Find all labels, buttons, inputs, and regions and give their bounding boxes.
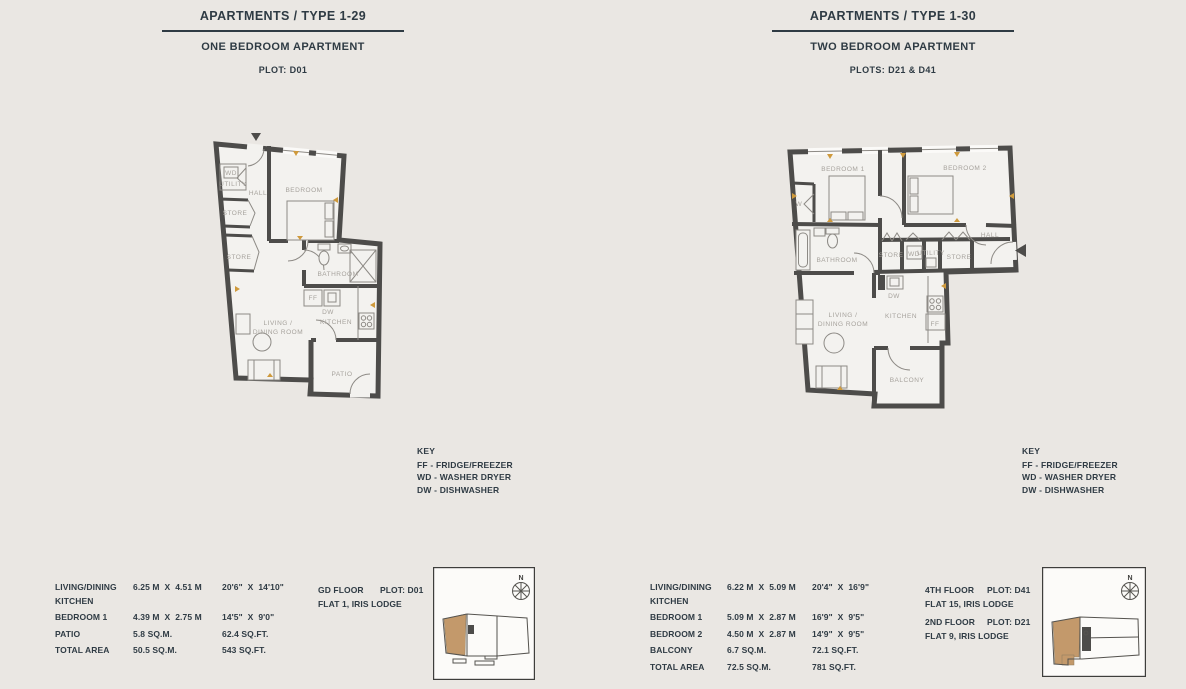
- key-item-wd: WD - WASHER DRYER: [417, 471, 513, 484]
- room-label-store-left: STORE: [879, 252, 904, 259]
- room-label-kitchen: KITCHEN: [320, 319, 352, 326]
- row-metric: 50.5 SQ.M.: [133, 644, 222, 658]
- key-item-ff: FF - FRIDGE/FREEZER: [417, 459, 513, 472]
- left-spec-table: LIVING/DININGKITCHEN6.25 M X 4.51 M20'6"…: [55, 581, 332, 661]
- bed: [287, 201, 334, 240]
- row-name: BALCONY: [650, 644, 727, 658]
- side-unit: [236, 314, 250, 334]
- room-label-store-lower: STORE: [227, 254, 252, 261]
- room-label-ff: FF: [931, 321, 940, 328]
- key-item-dw: DW - DISHWASHER: [1022, 484, 1118, 497]
- left-unit-header: APARTMENTS / TYPE 1-29 ONE BEDROOM APART…: [162, 9, 404, 75]
- basin: [338, 244, 351, 253]
- room-label-wardrobe: W: [796, 201, 803, 208]
- row-name: PATIO: [55, 628, 133, 642]
- room-label-balcony: BALCONY: [890, 377, 925, 384]
- room-label-bedroom: BEDROOM: [285, 187, 322, 194]
- highlighted-unit: [444, 614, 466, 655]
- left-title: APARTMENTS / TYPE 1-29: [162, 9, 404, 23]
- row-metric: 5.8 SQ.M.: [133, 628, 222, 642]
- entry-opening: [247, 147, 263, 149]
- left-subtitle: ONE BEDROOM APARTMENT: [162, 41, 404, 53]
- room-label-store-right: STORE: [947, 254, 972, 261]
- room-label-kitchen: KITCHEN: [885, 313, 917, 320]
- row-imperial: 20'6" X 14'10": [222, 581, 332, 595]
- table-row: BEDROOM 14.39 M X 2.75 M14'5" X 9'0": [55, 611, 332, 625]
- left-plot: PLOT: D01: [162, 65, 404, 75]
- right-plot: PLOTS: D21 & D41: [772, 65, 1014, 75]
- bed-2: [908, 176, 953, 214]
- row-name: TOTAL AREA: [650, 661, 727, 675]
- row-name: LIVING/DINING: [650, 582, 712, 592]
- row-name: BEDROOM 1: [55, 611, 133, 625]
- entry-arrow-icon: [251, 133, 261, 141]
- dining-table: [824, 333, 844, 353]
- row-imperial: 14'5" X 9'0": [222, 611, 332, 625]
- right-floor-info: 4TH FLOORPLOT: D41 FLAT 15, IRIS LODGE 2…: [925, 583, 1030, 647]
- floor-label: 4TH FLOOR: [925, 583, 987, 597]
- row-metric: 6.25 M X 4.51 M: [133, 581, 222, 595]
- room-label-dw: DW: [888, 293, 900, 300]
- room-label-hall: HALL: [249, 190, 267, 197]
- row-metric: 4.50 M X 2.87 M: [727, 628, 812, 642]
- table-row: PATIO5.8 SQ.M.62.4 SQ.FT.: [55, 628, 332, 642]
- right-unit-header: APARTMENTS / TYPE 1-30 TWO BEDROOM APART…: [772, 9, 1014, 75]
- room-label-utility: UTILITY: [219, 181, 247, 188]
- row-imperial: 781 SQ.FT.: [812, 661, 925, 675]
- left-sitemap: N: [433, 567, 535, 680]
- table-row: TOTAL AREA50.5 SQ.M.543 SQ.FT.: [55, 644, 332, 658]
- room-label-living-1: LIVING /: [829, 312, 858, 319]
- bathtub: [796, 230, 810, 270]
- key-item-wd: WD - WASHER DRYER: [1022, 471, 1118, 484]
- location-block: 2ND FLOORPLOT: D21 FLAT 9, IRIS LODGE: [925, 615, 1030, 643]
- plot-label: PLOT: D41: [987, 585, 1030, 595]
- key-heading: KEY: [417, 445, 513, 458]
- left-key: KEY FF - FRIDGE/FREEZER WD - WASHER DRYE…: [417, 445, 513, 496]
- row-imperial: 62.4 SQ.FT.: [222, 628, 332, 642]
- right-sitemap: N: [1042, 567, 1146, 677]
- floor-label: GD FLOOR: [318, 583, 380, 597]
- entry-opening: [1013, 242, 1014, 260]
- room-label-wd: WD: [225, 170, 237, 177]
- table-row: BEDROOM 24.50 M X 2.87 M14'9" X 9'5": [650, 628, 925, 642]
- row-name-2: KITCHEN: [650, 596, 688, 606]
- room-label-bedroom2: BEDROOM 2: [943, 165, 987, 172]
- room-label-bathroom: BATHROOM: [317, 271, 358, 278]
- room-label-living-2: DINING ROOM: [818, 321, 868, 328]
- room-label-living-1: LIVING /: [264, 320, 293, 327]
- floor-label: 2ND FLOOR: [925, 615, 987, 629]
- armchair: [816, 366, 847, 388]
- room-label-dw: DW: [322, 309, 334, 316]
- row-imperial: 72.1 SQ.FT.: [812, 644, 925, 658]
- row-imperial: 14'9" X 9'5": [812, 628, 925, 642]
- flat-label: FLAT 9, IRIS LODGE: [925, 631, 1009, 641]
- room-label-ff: FF: [309, 295, 318, 302]
- row-imperial: 16'9" X 9'5": [812, 611, 925, 625]
- svg-text:N: N: [1127, 575, 1132, 582]
- row-metric: 4.39 M X 2.75 M: [133, 611, 222, 625]
- floorplan-one-bedroom: WD UTILITY HALL STORE STORE BEDROOM BATH…: [192, 128, 392, 418]
- right-subtitle: TWO BEDROOM APARTMENT: [772, 41, 1014, 53]
- row-imperial: 543 SQ.FT.: [222, 644, 332, 658]
- left-title-rule: [162, 30, 404, 32]
- utility-sink: [926, 258, 936, 267]
- floorplan-two-bedroom: BEDROOM 1 BEDROOM 2 W HALL BATHROOM STOR…: [770, 138, 1030, 426]
- right-title: APARTMENTS / TYPE 1-30: [772, 9, 1014, 23]
- room-label-utility: UTILITY: [917, 250, 945, 257]
- key-item-ff: FF - FRIDGE/FREEZER: [1022, 459, 1118, 472]
- row-name: TOTAL AREA: [55, 644, 133, 658]
- plot-label: PLOT: D21: [987, 617, 1030, 627]
- room-label-bathroom: BATHROOM: [816, 257, 857, 264]
- svg-text:N: N: [518, 575, 523, 582]
- row-metric: 6.22 M X 5.09 M: [727, 581, 812, 595]
- right-title-rule: [772, 30, 1014, 32]
- room-label-hall: HALL: [981, 232, 999, 239]
- sofa: [248, 360, 280, 380]
- table-row: LIVING/DININGKITCHEN6.22 M X 5.09 M20'4"…: [650, 581, 925, 608]
- left-floor-info: GD FLOORPLOT: D01 FLAT 1, IRIS LODGE: [318, 583, 423, 615]
- row-metric: 5.09 M X 2.87 M: [727, 611, 812, 625]
- room-label-patio: PATIO: [331, 371, 352, 378]
- key-item-dw: DW - DISHWASHER: [417, 484, 513, 497]
- row-name: BEDROOM 1: [650, 611, 727, 625]
- row-metric: 6.7 SQ.M.: [727, 644, 812, 658]
- flat-label: FLAT 15, IRIS LODGE: [925, 599, 1014, 609]
- right-key: KEY FF - FRIDGE/FREEZER WD - WASHER DRYE…: [1022, 445, 1118, 496]
- row-name: BEDROOM 2: [650, 628, 727, 642]
- table-row: LIVING/DININGKITCHEN6.25 M X 4.51 M20'6"…: [55, 581, 332, 608]
- toilet: [318, 244, 330, 265]
- room-label-bedroom1: BEDROOM 1: [821, 166, 865, 173]
- right-spec-table: LIVING/DININGKITCHEN6.22 M X 5.09 M20'4"…: [650, 581, 925, 677]
- room-label-living-2: DINING ROOM: [253, 329, 303, 336]
- plot-label: PLOT: D01: [380, 585, 423, 595]
- room-label-store-upper: STORE: [223, 210, 248, 217]
- flat-label: FLAT 1, IRIS LODGE: [318, 599, 402, 609]
- toilet: [826, 228, 839, 248]
- location-block: 4TH FLOORPLOT: D41 FLAT 15, IRIS LODGE: [925, 583, 1030, 611]
- row-imperial: 20'4" X 16'9": [812, 581, 925, 595]
- table-row: BALCONY6.7 SQ.M.72.1 SQ.FT.: [650, 644, 925, 658]
- bed-1: [829, 176, 865, 220]
- key-heading: KEY: [1022, 445, 1118, 458]
- table-row: BEDROOM 15.09 M X 2.87 M16'9" X 9'5": [650, 611, 925, 625]
- sofa: [796, 300, 813, 344]
- row-metric: 72.5 SQ.M.: [727, 661, 812, 675]
- location-block: GD FLOORPLOT: D01 FLAT 1, IRIS LODGE: [318, 583, 423, 611]
- row-name-2: KITCHEN: [55, 596, 93, 606]
- basin: [814, 228, 825, 236]
- row-name: LIVING/DINING: [55, 582, 117, 592]
- table-row: TOTAL AREA72.5 SQ.M.781 SQ.FT.: [650, 661, 925, 675]
